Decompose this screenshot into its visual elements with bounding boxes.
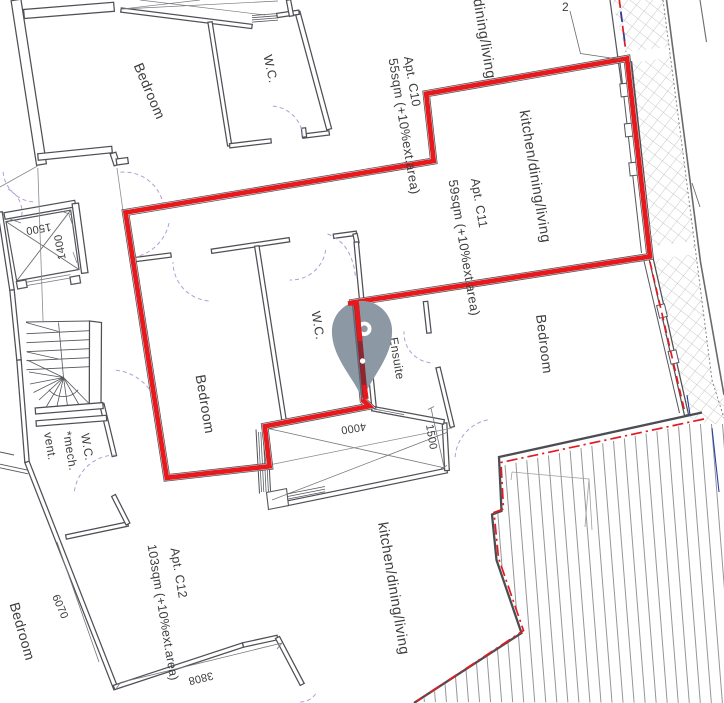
svg-text:W.C.: W.C. — [78, 432, 96, 462]
svg-text:vent.: vent. — [41, 431, 59, 461]
svg-text:2: 2 — [562, 0, 569, 14]
svg-text:6070: 6070 — [49, 593, 70, 621]
svg-text:Bedroom: Bedroom — [131, 60, 169, 121]
svg-text:3808: 3808 — [187, 669, 214, 687]
svg-text:Bedroom: Bedroom — [7, 600, 39, 662]
svg-text:Apt. C12: Apt. C12 — [168, 547, 190, 600]
svg-text:*mech.: *mech. — [60, 430, 80, 472]
svg-text:kitchen/dining/living: kitchen/dining/living — [374, 521, 412, 656]
svg-text:4000: 4000 — [340, 420, 367, 436]
svg-text:1500: 1500 — [423, 424, 439, 451]
svg-text:kitchen/dining/living: kitchen/dining/living — [516, 109, 554, 244]
svg-text:Bedroom: Bedroom — [193, 373, 219, 434]
svg-text:kitchen/dining/living: kitchen/dining/living — [461, 0, 499, 80]
svg-text:W.C.: W.C. — [309, 310, 328, 341]
svg-text:Apt. C11: Apt. C11 — [468, 177, 490, 229]
svg-text:W.C.: W.C. — [261, 53, 281, 84]
svg-text:Bedroom: Bedroom — [533, 313, 556, 374]
